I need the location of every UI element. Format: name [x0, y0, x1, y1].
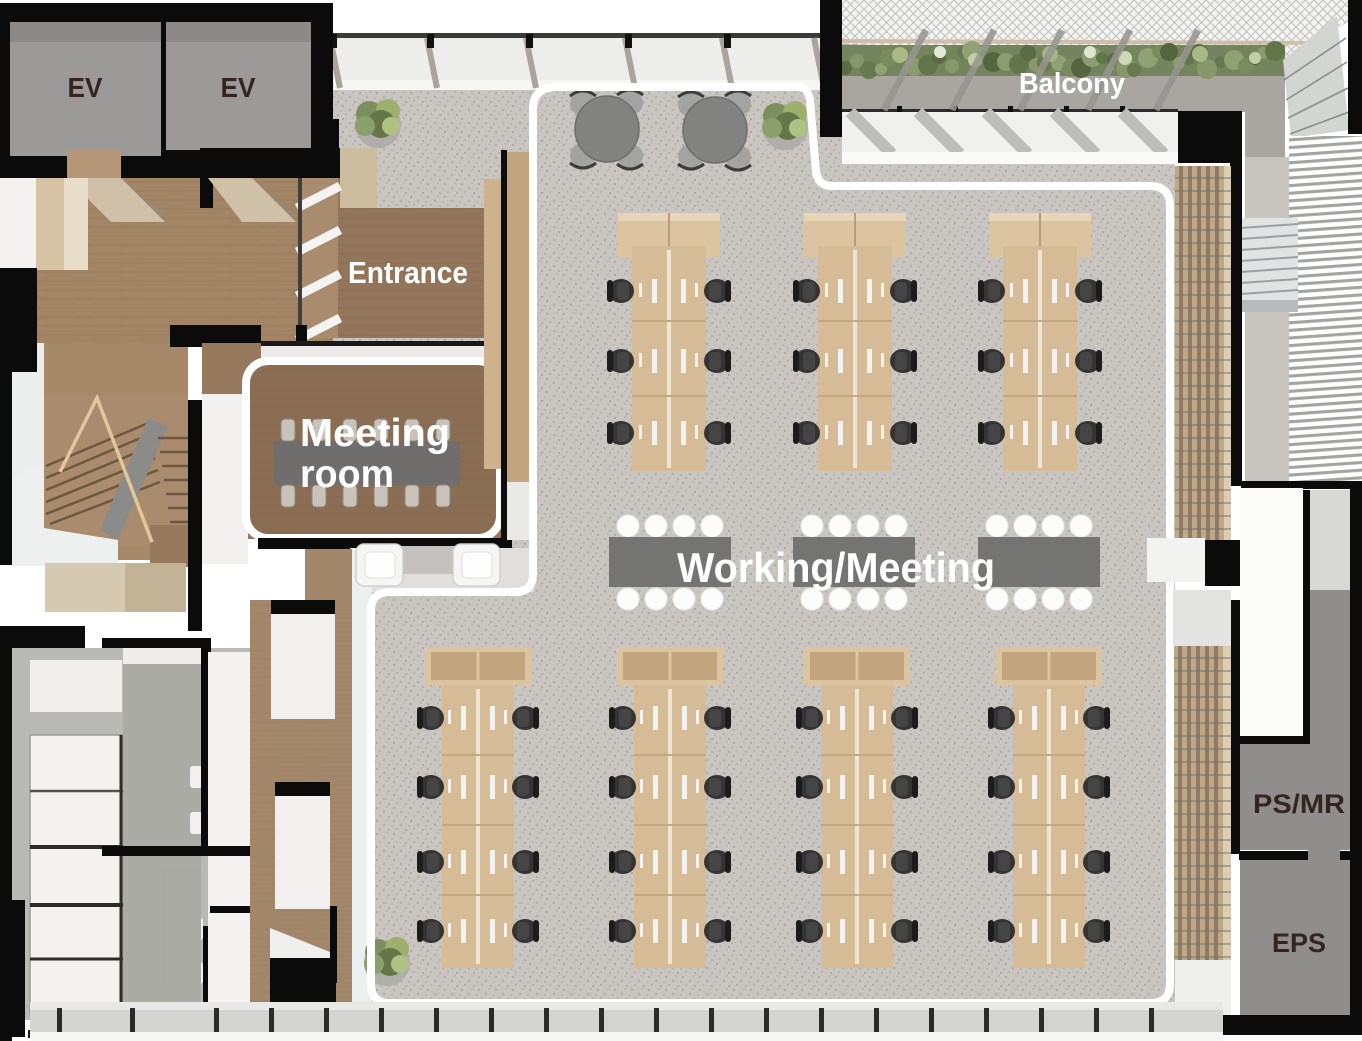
svg-text:Working/Meeting: Working/Meeting — [677, 544, 995, 591]
svg-text:Balcony: Balcony — [1019, 68, 1125, 100]
svg-text:PS/MR: PS/MR — [1253, 789, 1345, 819]
svg-text:room: room — [300, 453, 394, 496]
svg-text:EPS: EPS — [1272, 928, 1326, 958]
svg-text:EV: EV — [221, 72, 256, 103]
svg-text:Entrance: Entrance — [348, 255, 468, 290]
svg-text:EV: EV — [68, 72, 103, 103]
svg-text:Meeting: Meeting — [300, 412, 450, 455]
